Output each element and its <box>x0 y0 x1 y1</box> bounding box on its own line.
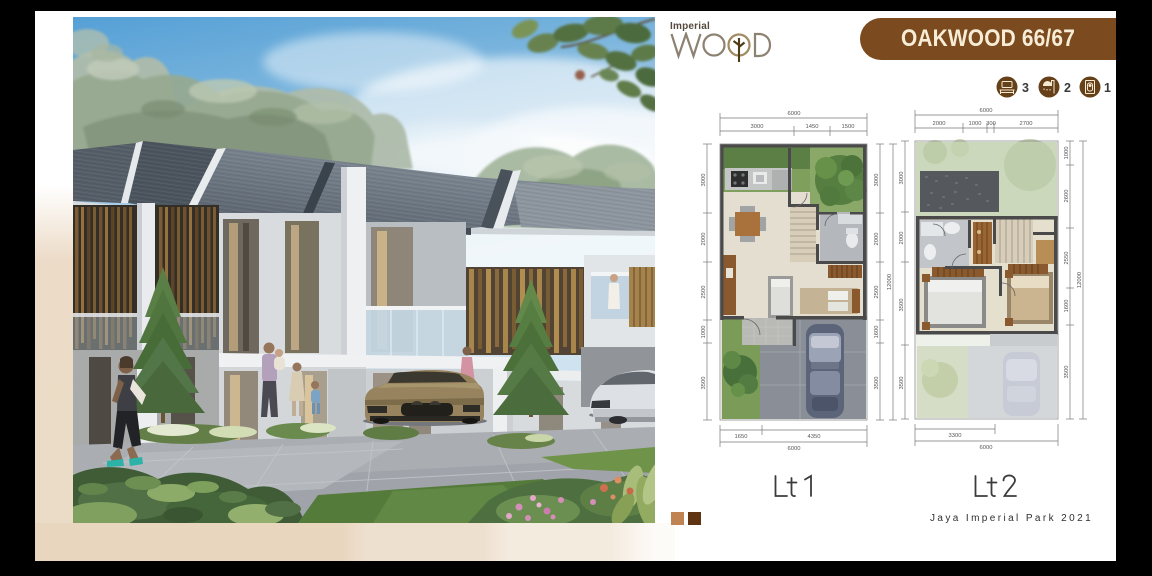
svg-text:3000: 3000 <box>874 174 880 187</box>
svg-text:2000: 2000 <box>899 232 905 245</box>
svg-text:3000: 3000 <box>701 174 707 187</box>
svg-text:3500: 3500 <box>701 377 707 390</box>
svg-text:2500: 2500 <box>701 286 707 299</box>
svg-text:1450: 1450 <box>806 124 819 130</box>
svg-text:12000: 12000 <box>1077 272 1083 288</box>
svg-text:6000: 6000 <box>788 446 801 450</box>
svg-text:2000: 2000 <box>701 233 707 246</box>
svg-text:3000: 3000 <box>899 172 905 185</box>
svg-text:1600: 1600 <box>874 326 880 339</box>
svg-text:2500: 2500 <box>874 286 880 299</box>
svg-text:2600: 2600 <box>1064 190 1070 203</box>
svg-text:2700: 2700 <box>1020 121 1033 127</box>
svg-text:12000: 12000 <box>887 274 893 290</box>
svg-text:3500: 3500 <box>899 299 905 312</box>
svg-text:2000: 2000 <box>933 121 946 127</box>
svg-text:6000: 6000 <box>980 445 993 450</box>
svg-text:2000: 2000 <box>874 233 880 246</box>
svg-text:2550: 2550 <box>1064 252 1070 265</box>
svg-text:2: 2 <box>1064 81 1071 95</box>
svg-text:3300: 3300 <box>949 433 962 439</box>
svg-text:300: 300 <box>986 121 996 127</box>
svg-text:1500: 1500 <box>842 124 855 130</box>
svg-text:3500: 3500 <box>1064 366 1070 379</box>
svg-text:3500: 3500 <box>899 377 905 390</box>
svg-text:4350: 4350 <box>808 434 821 440</box>
svg-text:1600: 1600 <box>1064 300 1070 313</box>
svg-text:1650: 1650 <box>735 434 748 440</box>
svg-text:1000: 1000 <box>969 121 982 127</box>
svg-text:3500: 3500 <box>874 377 880 390</box>
svg-text:3: 3 <box>1022 81 1029 95</box>
svg-text:3000: 3000 <box>751 124 764 130</box>
svg-text:1: 1 <box>1104 81 1111 95</box>
svg-text:1000: 1000 <box>1064 147 1070 160</box>
svg-text:1000: 1000 <box>701 326 707 339</box>
svg-text:6000: 6000 <box>788 111 801 117</box>
svg-text:6000: 6000 <box>980 108 993 114</box>
